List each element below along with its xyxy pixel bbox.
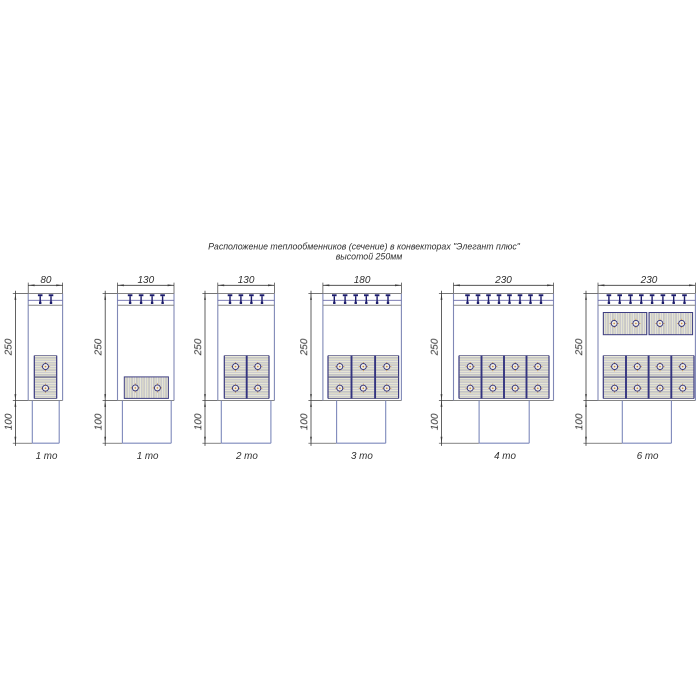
svg-text:250: 250 [574, 338, 585, 356]
svg-text:Расположение теплообменников (: Расположение теплообменников (сечение) в… [208, 242, 521, 252]
svg-text:6 mo: 6 mo [637, 451, 659, 462]
svg-text:250: 250 [193, 338, 204, 356]
svg-text:100: 100 [299, 413, 310, 430]
svg-text:80: 80 [40, 275, 52, 286]
svg-text:2 mo: 2 mo [235, 451, 258, 462]
svg-text:230: 230 [494, 275, 512, 286]
svg-text:3 mo: 3 mo [351, 451, 373, 462]
svg-text:100: 100 [93, 413, 104, 430]
svg-text:100: 100 [193, 413, 204, 430]
svg-text:100: 100 [4, 413, 15, 430]
svg-text:250: 250 [430, 338, 441, 356]
svg-text:100: 100 [430, 413, 441, 430]
svg-text:130: 130 [137, 275, 154, 286]
svg-text:130: 130 [238, 275, 255, 286]
svg-text:100: 100 [574, 413, 585, 430]
svg-text:250: 250 [299, 338, 310, 356]
svg-text:высотой 250мм: высотой 250мм [336, 252, 403, 262]
svg-text:1 mo: 1 mo [36, 451, 58, 462]
svg-text:180: 180 [354, 275, 371, 286]
svg-text:250: 250 [93, 338, 104, 356]
svg-text:250: 250 [4, 338, 15, 356]
svg-text:1 mo: 1 mo [137, 451, 159, 462]
svg-text:230: 230 [640, 275, 658, 286]
svg-text:4 mo: 4 mo [494, 451, 516, 462]
